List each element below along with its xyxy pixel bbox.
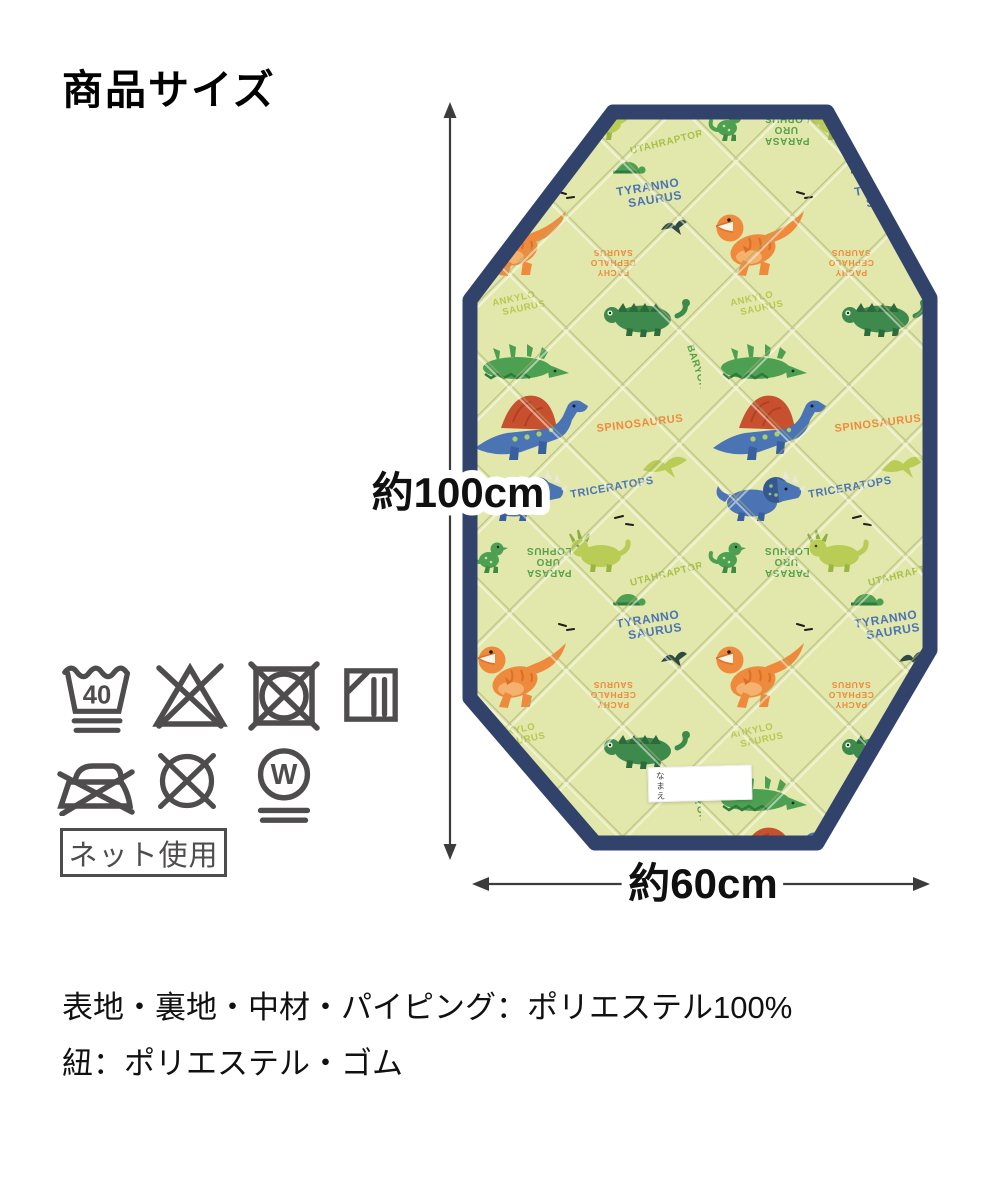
page-title: 商品サイズ [62, 56, 276, 116]
product-size-panel: 商品サイズ 40 [0, 0, 1000, 1200]
materials-note: 表地・裏地・中材・パイピング：ポリエステル100% 紐：ポリエステル・ゴム [62, 980, 792, 1092]
dry-in-shade-icon [342, 666, 400, 724]
no-bleach-icon [150, 660, 230, 732]
width-label: 約60cm [628, 860, 777, 907]
laundry-net-label: ネット使用 [68, 832, 218, 874]
wash-40-icon: 40 [60, 658, 136, 738]
wet-clean-label: W [271, 758, 298, 790]
wet-clean-gentle-icon: W [254, 748, 314, 830]
quilted-mat-image: PARASA URO LOPHUS UTAHRAPTOR [453, 100, 947, 860]
laundry-net-note: ネット使用 [60, 828, 227, 877]
no-tumble-dry-icon [244, 659, 324, 733]
name-tag-label: なまえ [654, 771, 668, 801]
materials-line-1: 表地・裏地・中材・パイピング：ポリエステル100% [62, 980, 792, 1036]
materials-line-2: 紐：ポリエステル・ゴム [62, 1036, 792, 1092]
name-tag: なまえ [648, 765, 753, 803]
width-dimension: 約60cm [468, 858, 934, 910]
wash-temp-label: 40 [83, 682, 112, 710]
no-iron-icon [56, 750, 136, 816]
no-dry-clean-icon [149, 748, 225, 814]
